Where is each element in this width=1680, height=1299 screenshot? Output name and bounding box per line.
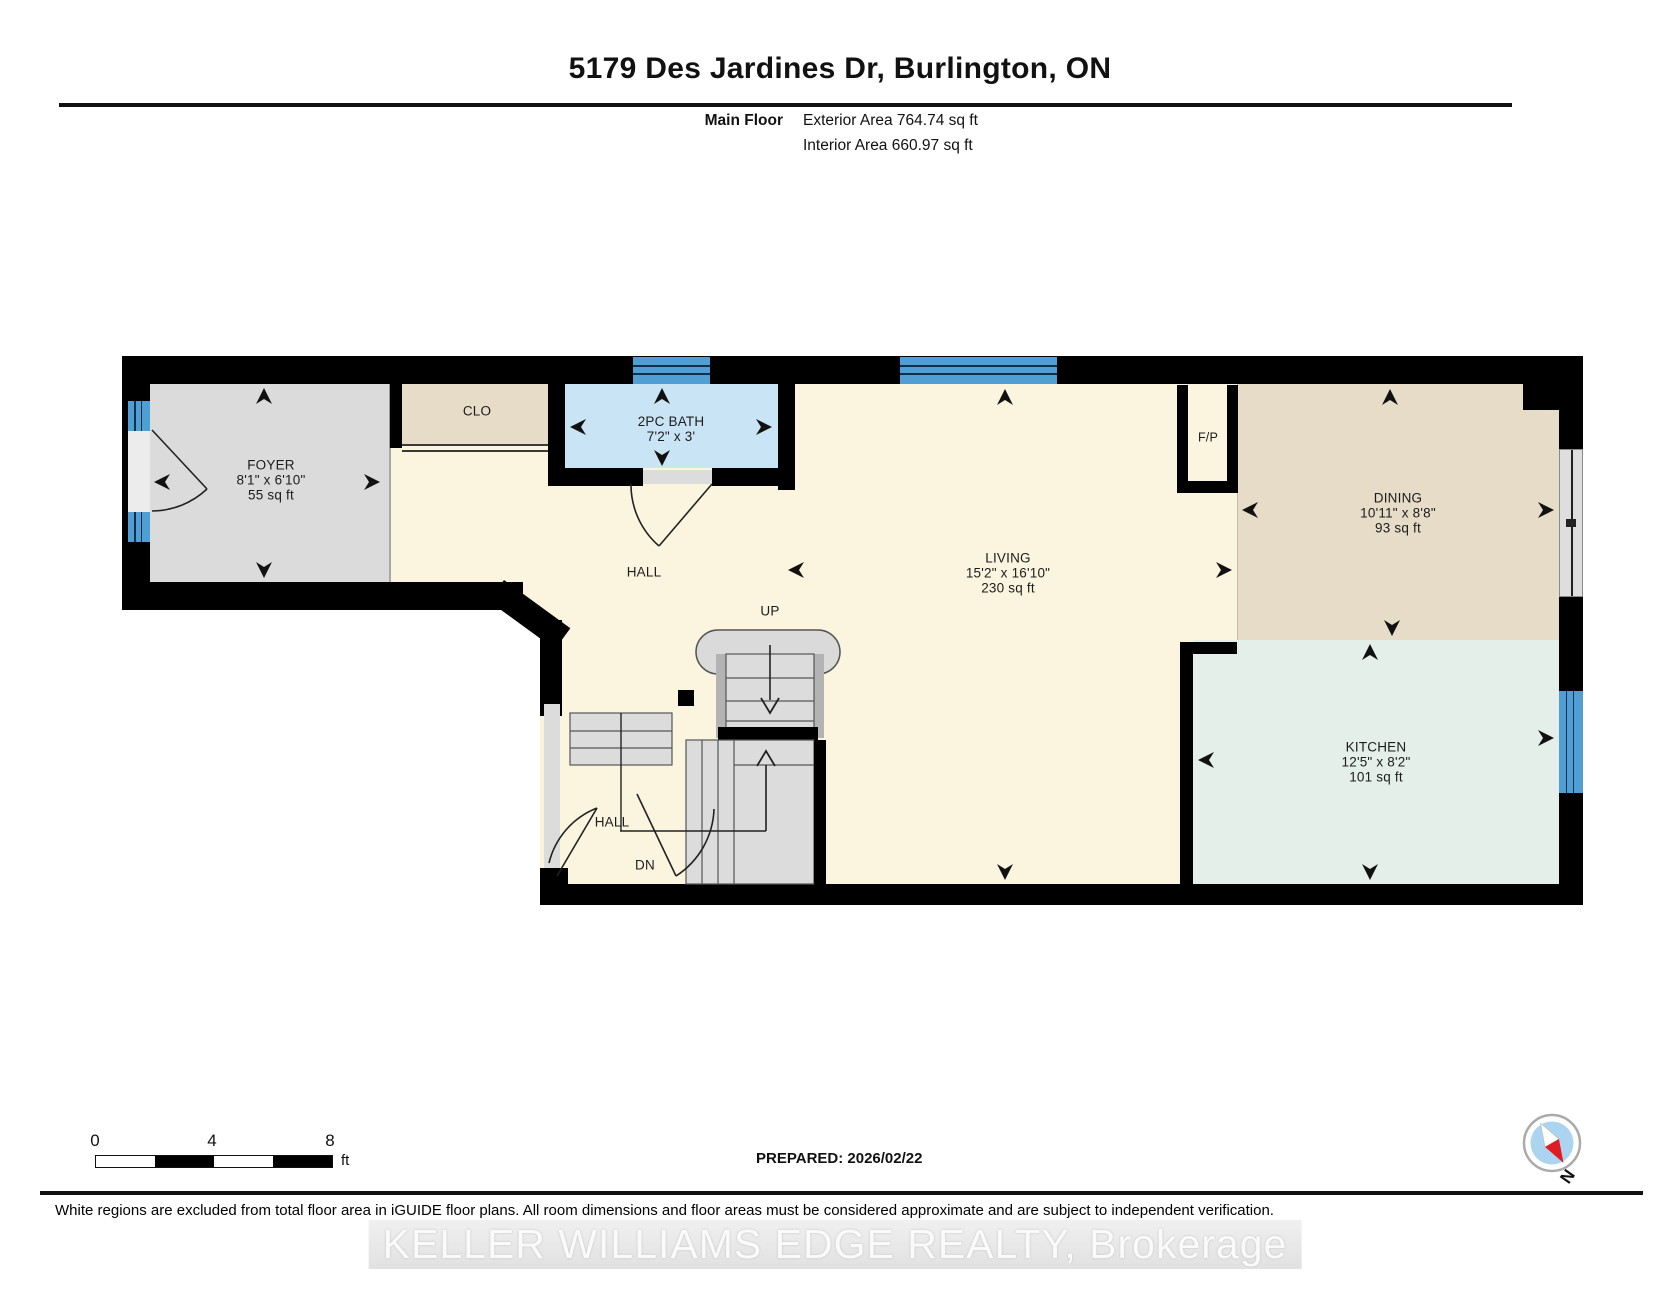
room-label-hall-upper: HALL bbox=[627, 565, 662, 580]
room-dims: 10'11" x 8'8" bbox=[1360, 506, 1436, 521]
prepared-date-label: PREPARED: 2026/02/22 bbox=[756, 1150, 922, 1167]
room-label-dining: DINING 10'11" x 8'8" 93 sq ft bbox=[1360, 491, 1436, 536]
compass: N bbox=[1510, 1100, 1606, 1200]
wall-top bbox=[122, 356, 1583, 384]
window-bath bbox=[633, 357, 710, 384]
room-area: 230 sq ft bbox=[966, 581, 1050, 596]
wall-fireplace-bottom bbox=[1177, 481, 1238, 493]
room-name: LIVING bbox=[966, 551, 1050, 566]
closet-door-line bbox=[402, 444, 548, 446]
wall-foyer-closet bbox=[390, 380, 402, 448]
disclaimer-text: White regions are excluded from total fl… bbox=[55, 1202, 1274, 1219]
exterior-area-label: Exterior Area 764.74 sq ft bbox=[803, 112, 978, 130]
room-label-kitchen: KITCHEN 12'5" x 8'2" 101 sq ft bbox=[1342, 740, 1411, 785]
brokerage-watermark: KELLER WILLIAMS EDGE REALTY, Brokerage bbox=[369, 1220, 1302, 1269]
closet-door-line bbox=[402, 450, 548, 452]
wall-bath-left bbox=[548, 380, 565, 472]
window-living bbox=[900, 357, 1057, 384]
wall-hall-left bbox=[540, 620, 562, 716]
foyer-hall-boundary bbox=[389, 448, 391, 582]
page-title: 5179 Des Jardines Dr, Burlington, ON bbox=[0, 52, 1680, 86]
window-foyer-upper bbox=[128, 401, 150, 431]
room-dims: 7'2" x 3' bbox=[638, 429, 705, 444]
wall-corner-block bbox=[1523, 384, 1559, 410]
front-door-sill bbox=[128, 431, 150, 512]
room-area: 101 sq ft bbox=[1342, 770, 1411, 785]
wall-bottom bbox=[540, 884, 1583, 905]
room-area: 93 sq ft bbox=[1360, 521, 1436, 536]
scale-tick-0: 0 bbox=[90, 1131, 99, 1151]
wall-right bbox=[1559, 356, 1583, 905]
room-dims: 15'2" x 16'10" bbox=[966, 566, 1050, 581]
sliding-door-handle bbox=[1566, 519, 1576, 527]
scale-tick-4: 4 bbox=[207, 1131, 216, 1151]
sliding-door-dining bbox=[1559, 449, 1583, 597]
room-area: 55 sq ft bbox=[237, 488, 306, 503]
stair-dn-label: DN bbox=[635, 858, 655, 873]
wall-bath-bottom-left bbox=[548, 468, 643, 486]
wall-kitchen-stub bbox=[1193, 642, 1237, 654]
room-label-foyer: FOYER 8'1" x 6'10" 55 sq ft bbox=[237, 458, 306, 503]
room-label-hall-lower: HALL bbox=[595, 815, 630, 830]
room-dims: 12'5" x 8'2" bbox=[1342, 755, 1411, 770]
wall-fireplace-left bbox=[1177, 385, 1188, 493]
room-name: 2PC BATH bbox=[638, 414, 705, 429]
exterior-cutout bbox=[0, 610, 540, 940]
wall-foyer-bottom bbox=[122, 582, 523, 610]
room-dims: 8'1" x 6'10" bbox=[237, 473, 306, 488]
room-label-living: LIVING 15'2" x 16'10" 230 sq ft bbox=[966, 551, 1050, 596]
header-divider bbox=[59, 103, 1512, 107]
room-name: DINING bbox=[1360, 491, 1436, 506]
wall-hall-left-block bbox=[540, 868, 568, 890]
fireplace-label: F/P bbox=[1198, 431, 1218, 446]
room-name: FOYER bbox=[237, 458, 306, 473]
wall-fireplace-right bbox=[1227, 385, 1238, 493]
scale-bar bbox=[95, 1155, 333, 1168]
interior-area-label: Interior Area 660.97 sq ft bbox=[803, 137, 973, 155]
room-name: KITCHEN bbox=[1342, 740, 1411, 755]
room-label-closet: CLO bbox=[463, 404, 491, 419]
floor-label: Main Floor bbox=[583, 112, 783, 130]
scale-tick-8: 8 bbox=[325, 1131, 334, 1151]
wall-kitchen-left bbox=[1180, 642, 1193, 884]
window-kitchen bbox=[1559, 691, 1583, 793]
room-label-bath: 2PC BATH 7'2" x 3' bbox=[638, 414, 705, 444]
window-foyer-lower bbox=[128, 512, 150, 542]
stair-up-label: UP bbox=[760, 604, 779, 619]
footer-divider bbox=[40, 1191, 1643, 1195]
wall-bath-bottom-right bbox=[712, 468, 795, 486]
scale-unit-label: ft bbox=[341, 1152, 349, 1169]
